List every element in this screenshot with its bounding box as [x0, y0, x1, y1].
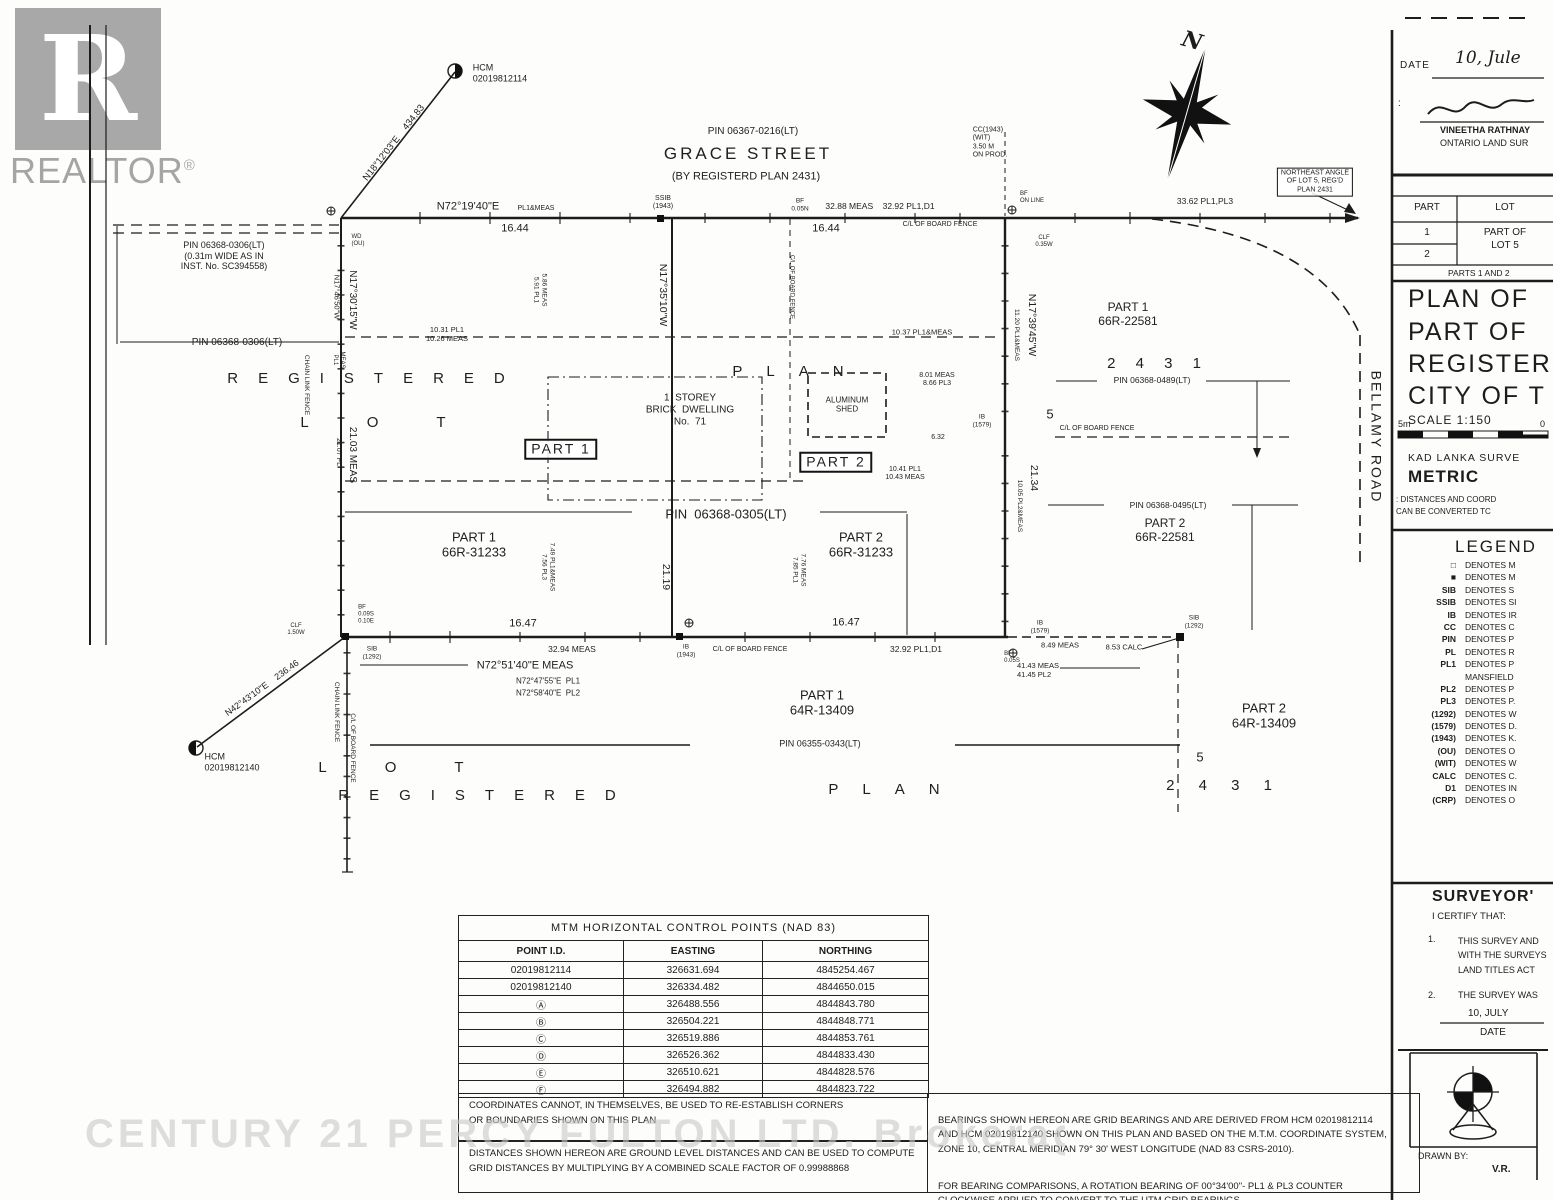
meas-pl1-small: MEAS PL1 [331, 351, 345, 368]
plan-title-line2: PART OF [1408, 318, 1528, 347]
control-point-cell: 02019812114 [459, 962, 624, 979]
registered-upper-spread: REGISTERED [227, 370, 525, 388]
pin-0305: PIN 06368-0305(LT) [665, 506, 786, 521]
plan-title-line1: PLAN OF [1408, 285, 1529, 314]
dim-6-32: 6.32 [931, 434, 945, 442]
cl-board-fence-vert: C/L OF BOARD FENCE [787, 255, 794, 319]
cc-wit-note: CC(1943) (WIT) 3.50 M ON PROD. [973, 127, 1008, 160]
lot-upper-spread: LOT [300, 414, 503, 432]
control-point-row: Ⓔ326510.6214844828.576 [459, 1064, 929, 1081]
legend-description: DENOTES M [1465, 560, 1516, 570]
bearing-n17-35-10: N17°35'10"W [657, 264, 669, 326]
bearing-n17-46-50: N17°46'50"W [332, 275, 341, 320]
legend-entry: PL3DENOTES P. [1396, 696, 1552, 706]
legend-symbol [1396, 672, 1465, 682]
control-point-cell: 326526.362 [624, 1047, 763, 1064]
pin-0343: PIN 06355-0343(LT) [779, 739, 860, 750]
legend-symbol: (1943) [1396, 733, 1465, 743]
legend-entry: PL1DENOTES P [1396, 659, 1552, 669]
control-point-cell: 4845254.467 [763, 962, 929, 979]
bellamy-road: BELLAMY ROAD [1368, 371, 1385, 504]
clf-0-35w: CLF 0.35W [1035, 235, 1052, 249]
control-point-cell: Ⓒ [459, 1030, 624, 1047]
plan-2431-lower: 2 4 3 1 [1166, 777, 1282, 795]
grace-street-sub: (BY REGISTERD PLAN 2431) [672, 171, 820, 184]
clf-1-50w: CLF 1.50W [287, 623, 304, 637]
pin-0306-label: PIN 06368-0306(LT) [192, 337, 282, 349]
grace-street-name: GRACE STREET [664, 144, 832, 164]
dim-32-88: 32.88 MEAS 32.92 PL1,D1 [825, 201, 934, 211]
survey-plan-page: R REALTOR® N HCM 02019812114N18°12'03"E … [0, 0, 1553, 1200]
bf-0-09s: BF 0.09S 0.10E [358, 604, 374, 625]
surveyor-name: VINEETHA RATHNAY [1440, 125, 1530, 135]
legend-entry: SSIBDENOTES SI [1396, 597, 1552, 607]
col-header-northing: NORTHING [763, 941, 929, 962]
legend-description: DENOTES K. [1465, 733, 1516, 743]
legend-entry: (OU)DENOTES O [1396, 746, 1552, 756]
control-point-cell: 4844650.015 [763, 979, 929, 996]
dim-16-44-west: 16.44 [501, 223, 529, 236]
col-header-point-id: POINT I.D. [459, 941, 624, 962]
dim-7-76: 7.76 MEAS 7.85 PL1 [791, 554, 806, 587]
plan-title-line4: CITY OF T [1408, 382, 1546, 411]
legend-description: DENOTES D. [1465, 721, 1517, 731]
dim-10-31: 10.31 PL1 10.26 MEAS [426, 326, 468, 344]
part2-boxed: PART 2 [799, 452, 872, 473]
dim-21-03: 21.03 MEAS [346, 427, 358, 483]
dwelling-label: 1 STOREY BRICK DWELLING No. 71 [646, 392, 734, 427]
dim-21-07: 21.07 PL [334, 438, 342, 466]
cl-board-fence-right: C/L OF BOARD FENCE [1060, 425, 1135, 433]
bearing-bottom-pl1: N72°47'55"E PL1 [516, 676, 580, 685]
legend-entry: PLDENOTES R [1396, 647, 1552, 657]
legend-symbol: SIB [1396, 585, 1465, 595]
bearing-top-main: N72°19'40"E [437, 201, 499, 214]
legend-entry: ■DENOTES M [1396, 572, 1552, 582]
drawn-by-label: DRAWN BY: [1418, 1151, 1468, 1161]
dim-5-86: 5.86 MEAS 5.91 PL1 [532, 274, 547, 307]
legend-description: DENOTES W [1465, 709, 1516, 719]
legend-description: DENOTES R [1465, 647, 1515, 657]
dim-21-19: 21.19 [660, 564, 672, 590]
control-point-cell: Ⓑ [459, 1013, 624, 1030]
part1-66r-31233: PART 1 66R-31233 [442, 530, 506, 561]
certificate-date-label: DATE [1480, 1027, 1506, 1038]
titleblock-date-value: 10, Jule [1455, 48, 1521, 68]
legend-entry: MANSFIELD [1396, 672, 1552, 682]
legend-symbol: SSIB [1396, 597, 1465, 607]
plan-title-line3: REGISTERI [1408, 350, 1553, 379]
legend-entry: (CRP)DENOTES O [1396, 795, 1552, 805]
legend-entry: (1943)DENOTES K. [1396, 733, 1552, 743]
ib-1579-bottom: IB (1579) [1031, 619, 1050, 634]
legend-description: DENOTES SI [1465, 597, 1516, 607]
wd-ou: WD (OU) [352, 234, 365, 248]
legend-description: DENOTES O [1465, 795, 1515, 805]
schedule-col-lot: LOT [1460, 202, 1550, 213]
legend-description: DENOTES P [1465, 684, 1514, 694]
certificate-item2-no: 2. [1428, 990, 1436, 1000]
legend-description: DENOTES C. [1465, 771, 1517, 781]
survey-firm: KAD LANKA SURVE [1408, 452, 1520, 464]
metric-note: : DISTANCES AND COORD CAN BE CONVERTED T… [1396, 494, 1496, 519]
legend-entry: SIBDENOTES S [1396, 585, 1552, 595]
control-point-cell: 4844853.761 [763, 1030, 929, 1047]
bearing-top-suffix: PL1&MEAS [518, 205, 555, 213]
certificate-date-value: 10, JULY [1468, 1008, 1508, 1019]
sib-1292-bottom: SIB (1292) [1185, 614, 1204, 629]
legend-entry: CALCDENOTES C. [1396, 771, 1552, 781]
dim-32-92b: 32.92 PL1,D1 [890, 644, 942, 654]
legend-symbol: ■ [1396, 572, 1465, 582]
surveyor-title: ONTARIO LAND SUR [1440, 138, 1528, 148]
hcm-top-label: HCM 02019812114 [473, 62, 527, 83]
dim-10-41: 10.41 PL1 10.43 MEAS [885, 466, 924, 483]
titleblock-date-label: DATE [1400, 60, 1430, 71]
control-point-cell: 326510.621 [624, 1064, 763, 1081]
certificate-item1-no: 1. [1428, 934, 1436, 944]
ib-1943-bottom: IB (1943) [677, 643, 696, 658]
bf-0-05n: BF 0.05N [791, 197, 808, 212]
dim-11-20: 11.20 PL1&MEAS [1012, 309, 1020, 361]
part2-64r-13409: PART 2 64R-13409 [1232, 701, 1296, 732]
control-point-cell: 4844833.430 [763, 1047, 929, 1064]
dim-16-44-east: 16.44 [812, 223, 840, 236]
certificate-item1: THIS SURVEY AND WITH THE SURVEYS LAND TI… [1458, 934, 1547, 977]
plan-upper-spread: PLAN [732, 363, 867, 381]
titleblock-colon: : [1398, 98, 1401, 109]
schedule-row-1: 1 [1398, 227, 1456, 238]
scalebar-right-label: 0 [1540, 419, 1545, 429]
control-point-row: 02019812140326334.4824844650.015 [459, 979, 929, 996]
legend-entry: (WIT)DENOTES W [1396, 758, 1552, 768]
control-points-table-title: MTM HORIZONTAL CONTROL POINTS (NAD 83) [459, 916, 929, 941]
legend-description: DENOTES O [1465, 746, 1515, 756]
surveyor-certificate-title: SURVEYOR' [1432, 888, 1534, 906]
bf-on-line: BF ON LINE [1020, 191, 1044, 205]
legend-symbol: (CRP) [1396, 795, 1465, 805]
legend-symbol: (1292) [1396, 709, 1465, 719]
control-point-row: 02019812114326631.6944845254.467 [459, 962, 929, 979]
certificate-item2: THE SURVEY WAS [1458, 990, 1538, 1000]
control-point-row: Ⓓ326526.3624844833.430 [459, 1047, 929, 1064]
dim-7-49: 7.49 PL1&MEAS 7.56 PL3 [540, 543, 555, 592]
part1-64r-13409: PART 1 64R-13409 [790, 688, 854, 719]
legend-symbol: PL [1396, 647, 1465, 657]
schedule-lot-value: PART OF LOT 5 [1460, 226, 1550, 252]
legend-symbol: PIN [1396, 634, 1465, 644]
legend-description: DENOTES IN [1465, 783, 1517, 793]
control-point-cell: 4844828.576 [763, 1064, 929, 1081]
control-point-cell: 326519.886 [624, 1030, 763, 1047]
legend-description: DENOTES C [1465, 622, 1515, 632]
control-point-row: Ⓐ326488.5564844843.780 [459, 996, 929, 1013]
control-point-row: Ⓑ326504.2214844848.771 [459, 1013, 929, 1030]
dim-41-43: 41.43 MEAS 41.45 PL2 [1017, 662, 1059, 680]
legend-description: DENOTES P [1465, 659, 1514, 669]
schedule-footer: PARTS 1 AND 2 [1448, 268, 1510, 278]
legend-title: LEGEND [1455, 537, 1537, 557]
legend-symbol: D1 [1396, 783, 1465, 793]
certificate-certify: I CERTIFY THAT: [1432, 911, 1506, 922]
legend-symbol: CALC [1396, 771, 1465, 781]
control-point-cell: 02019812140 [459, 979, 624, 996]
legend-description: DENOTES S [1465, 585, 1514, 595]
legend-entry: PL2DENOTES P [1396, 684, 1552, 694]
legend-symbol: PL2 [1396, 684, 1465, 694]
legend-description: MANSFIELD [1465, 672, 1514, 682]
legend-description: DENOTES P. [1465, 696, 1515, 706]
legend-symbol: PL3 [1396, 696, 1465, 706]
legend-symbol: (WIT) [1396, 758, 1465, 768]
part2-66r-22581: PART 2 66R-22581 [1135, 516, 1194, 544]
scalebar-left-label: 5m [1398, 419, 1411, 429]
legend-description: DENOTES W [1465, 758, 1516, 768]
pin-0489: PIN 06368-0489(LT) [1114, 375, 1191, 385]
part2-66r-31233: PART 2 66R-31233 [829, 530, 893, 561]
plan-lower-spread: PLAN [828, 781, 963, 799]
control-point-cell: 326631.694 [624, 962, 763, 979]
northeast-angle-note: NORTHEAST ANGLE OF LOT 5, REG'D PLAN 243… [1277, 168, 1353, 197]
legend-entry: IBDENOTES IR [1396, 610, 1552, 620]
sib-1292-corner: SIB (1292) [363, 645, 382, 660]
legend-description: DENOTES M [1465, 572, 1516, 582]
brokerage-watermark: CENTURY 21 PERCY FULTON LTD. Brokerage [85, 1112, 1065, 1157]
aluminum-shed-label: ALUMINUM SHED [826, 396, 869, 415]
control-point-cell: Ⓓ [459, 1047, 624, 1064]
dim-8-01: 8.01 MEAS 8.66 PL3 [919, 372, 954, 389]
part1-66r-22581: PART 1 66R-22581 [1098, 300, 1157, 328]
grace-street-pin: PIN 06367-0216(LT) [708, 126, 798, 138]
control-point-cell: Ⓔ [459, 1064, 624, 1081]
dim-8-49: 8.49 MEAS [1041, 642, 1079, 651]
bearing-bottom-pl2: N72°58'40"E PL2 [516, 688, 580, 697]
metric-heading: METRIC [1408, 467, 1479, 487]
legend-symbol: PL1 [1396, 659, 1465, 669]
legend-entry: CCDENOTES C [1396, 622, 1552, 632]
rotation-note: FOR BEARING COMPARISONS, A ROTATION BEAR… [938, 1180, 1409, 1200]
legend-entry: PINDENOTES P [1396, 634, 1552, 644]
legend-description: DENOTES IR [1465, 610, 1517, 620]
col-header-easting: EASTING [624, 941, 763, 962]
bearing-n17-30-15: N17°30'15"W [346, 270, 358, 330]
cl-board-fence-top: C/L OF BOARD FENCE [903, 221, 978, 229]
control-point-cell: 4844843.780 [763, 996, 929, 1013]
cl-board-fence-bottom: C/L OF BOARD FENCE [713, 646, 788, 654]
schedule-row-2: 2 [1398, 249, 1456, 260]
lot-5-lower: 5 [1196, 749, 1203, 764]
chain-link-fence-lower: CHAIN LINK FENCE [332, 682, 340, 742]
schedule-col-part: PART [1398, 202, 1456, 213]
registered-lower-spread: REGISTERED [338, 787, 636, 805]
control-point-cell: 326504.221 [624, 1013, 763, 1030]
dim-16-47-east: 16.47 [832, 617, 860, 630]
legend-entry: □DENOTES M [1396, 560, 1552, 570]
legend-symbol: (1579) [1396, 721, 1465, 731]
legend-symbol: IB [1396, 610, 1465, 620]
legend-entry: D1DENOTES IN [1396, 783, 1552, 793]
dim-32-94: 32.94 MEAS [548, 644, 596, 654]
control-point-cell: 4844848.771 [763, 1013, 929, 1030]
control-point-cell: 326334.482 [624, 979, 763, 996]
ssib-1943-top: SSIB (1943) [653, 195, 673, 212]
legend-entry: (1292)DENOTES W [1396, 709, 1552, 719]
dim-10-05: 10.05 PL2&MEAS [1015, 480, 1023, 532]
pin-0495: PIN 06368-0495(LT) [1130, 500, 1207, 510]
dim-21-34: 21.34 [1028, 465, 1040, 491]
legend-symbol: □ [1396, 560, 1465, 570]
part1-boxed: PART 1 [524, 439, 597, 460]
legend-symbol: CC [1396, 622, 1465, 632]
dim-8-53: 8.53 CALC [1106, 644, 1143, 653]
legend-list: □DENOTES M■DENOTES MSIBDENOTES SSSIBDENO… [1396, 560, 1552, 808]
bearing-n17-39-45: N17°39'45"W [1026, 294, 1038, 356]
ib-1579-mid: IB (1579) [973, 413, 992, 428]
legend-entry: (1579)DENOTES D. [1396, 721, 1552, 731]
legend-description: DENOTES P [1465, 634, 1514, 644]
plan-scale: SCALE 1:150 [1408, 413, 1492, 427]
lot-5-upper: 5 [1046, 406, 1053, 421]
control-point-cell: 326488.556 [624, 996, 763, 1013]
hcm-bottom-label: HCM 02019812140 [204, 751, 259, 772]
control-points-table: MTM HORIZONTAL CONTROL POINTS (NAD 83) P… [458, 915, 929, 1098]
drawn-by-value: V.R. [1492, 1164, 1511, 1175]
dim-33-62: 33.62 PL1,PL3 [1177, 196, 1233, 206]
dim-10-37: 10.37 PL1&MEAS [892, 329, 952, 338]
plan-2431-upper: 2 4 3 1 [1107, 355, 1209, 373]
control-point-cell: Ⓐ [459, 996, 624, 1013]
bearing-bottom-meas: N72°51'40"E MEAS [477, 660, 574, 673]
pin-0306-note: PIN 06368-0306(LT) (0.31m WIDE AS IN INS… [181, 240, 268, 272]
legend-symbol: (OU) [1396, 746, 1465, 756]
dim-16-47-west: 16.47 [509, 618, 537, 631]
control-point-row: Ⓒ326519.8864844853.761 [459, 1030, 929, 1047]
lot-lower-spread: LOT [318, 759, 521, 777]
